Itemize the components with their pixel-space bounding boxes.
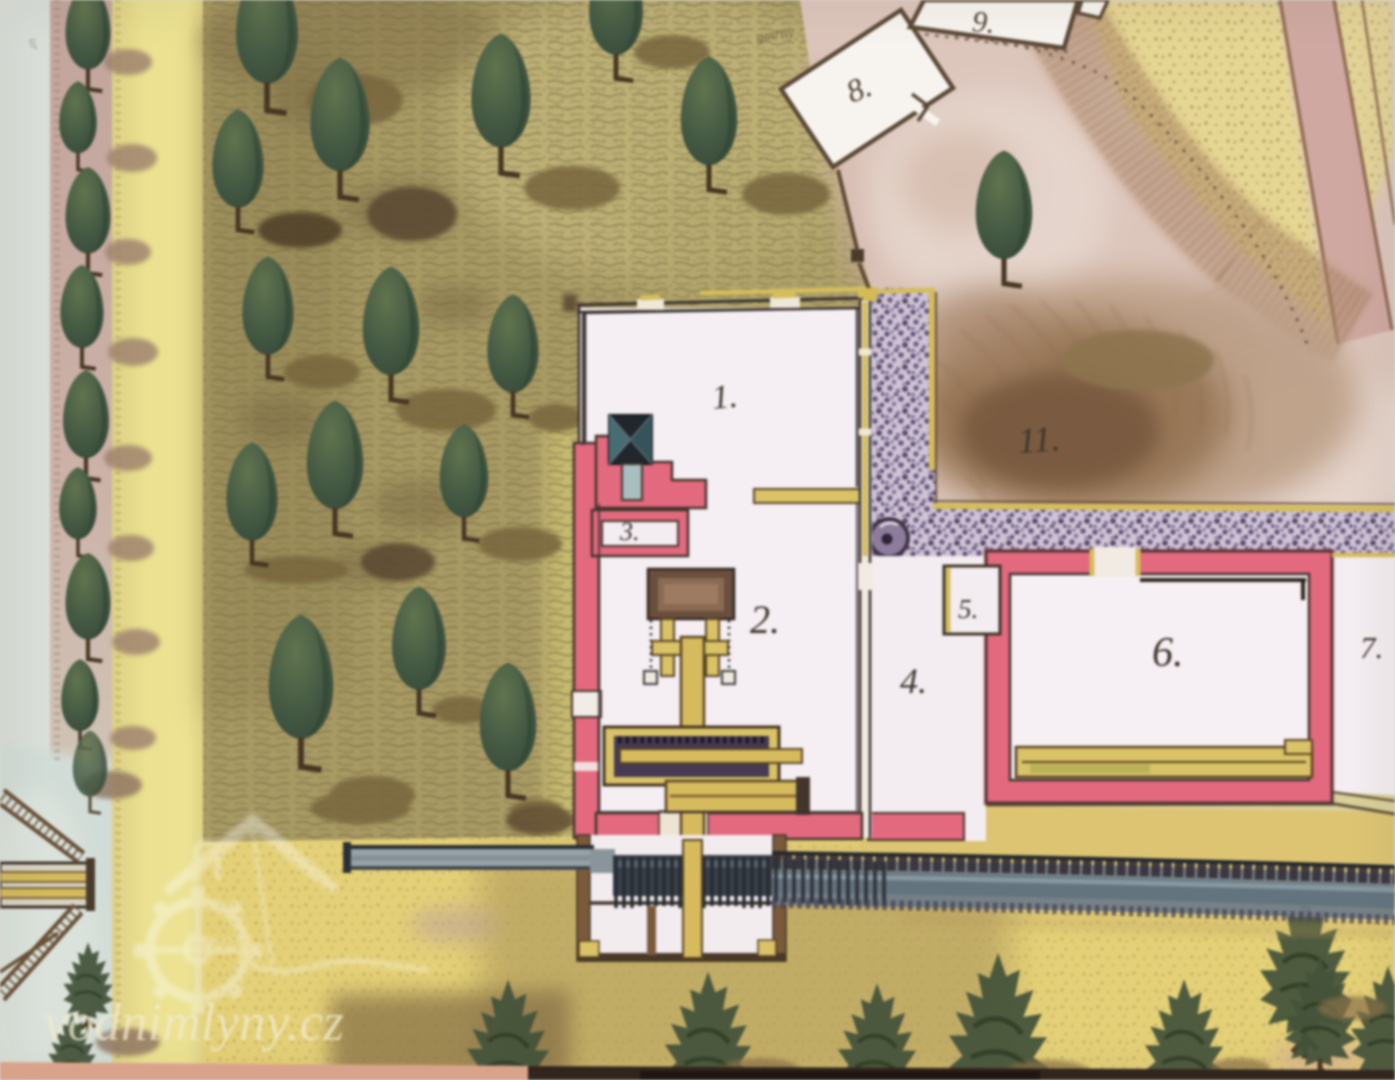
svg-text:2.: 2. [750, 597, 780, 642]
svg-text:6.: 6. [1152, 630, 1184, 676]
svg-text:vodnimlyny.cz: vodnimlyny.cz [44, 992, 344, 1052]
svg-text:11.: 11. [1017, 418, 1062, 461]
svg-text:1.: 1. [710, 377, 739, 416]
svg-text:5.: 5. [958, 594, 978, 624]
svg-text:3.: 3. [619, 517, 640, 546]
svg-text:4.: 4. [900, 661, 927, 701]
